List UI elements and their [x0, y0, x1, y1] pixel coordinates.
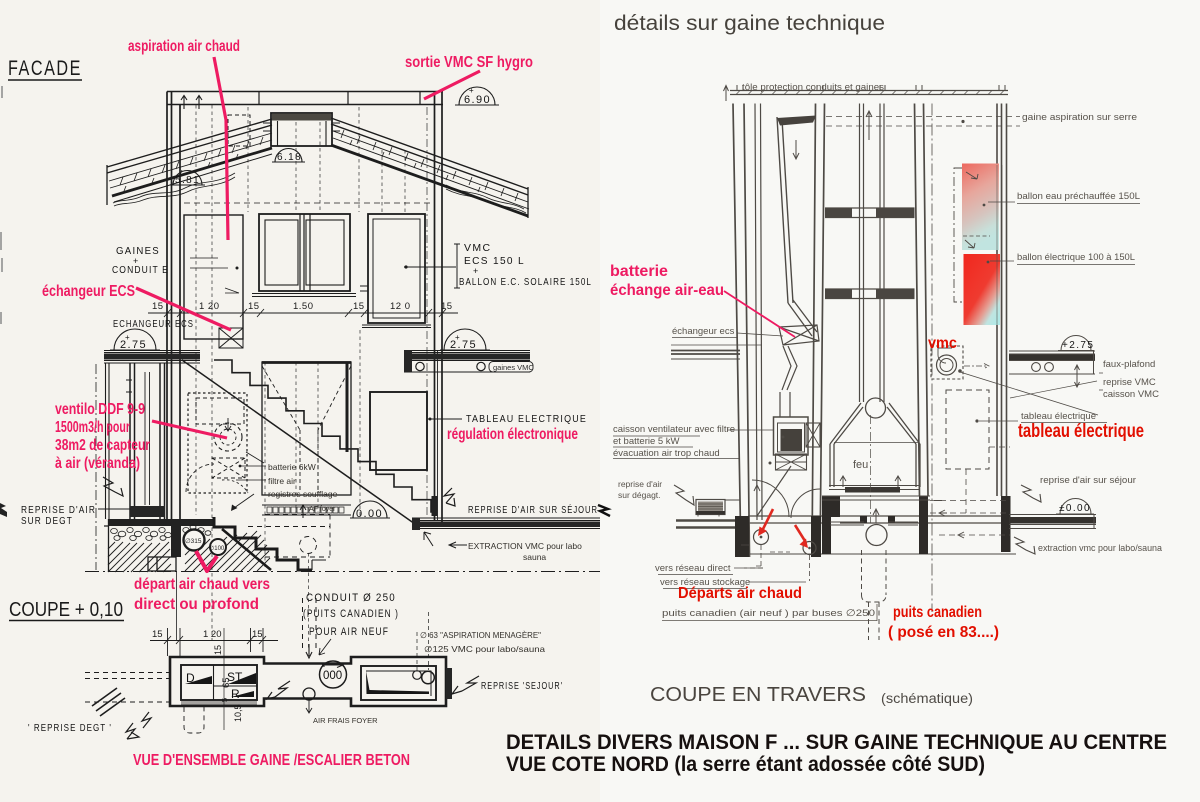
- svg-text:1 20: 1 20: [199, 301, 220, 312]
- svg-text:puits canadien: puits canadien: [893, 604, 982, 621]
- svg-text:FACADE: FACADE: [8, 57, 82, 80]
- svg-text:±0.00: ±0.00: [1059, 503, 1091, 514]
- svg-text:échangeur ECS: échangeur ECS: [42, 283, 135, 300]
- svg-text:AIR FRAIS FOYER: AIR FRAIS FOYER: [313, 716, 378, 725]
- svg-text:R: R: [231, 687, 240, 701]
- svg-text:15: 15: [152, 629, 163, 640]
- svg-text:POUR AIR NEUF: POUR AIR NEUF: [309, 626, 389, 638]
- svg-text:∅100: ∅100: [209, 545, 225, 552]
- svg-text:6.18: 6.18: [277, 152, 302, 163]
- svg-text:DETAILS DIVERS MAISON F ...: DETAILS DIVERS MAISON F ... SUR GAINE TE…: [506, 730, 1167, 754]
- svg-text:COUPE EN TRAVERS: COUPE EN TRAVERS: [650, 684, 866, 706]
- svg-text:batterie 6kW: batterie 6kW: [268, 462, 316, 472]
- svg-text:reprise d'air: reprise d'air: [618, 479, 662, 489]
- svg-text:15: 15: [441, 301, 453, 312]
- svg-text:gaine aspiration sur serre: gaine aspiration sur serre: [1022, 112, 1137, 123]
- svg-text:sauna: sauna: [523, 552, 546, 562]
- svg-text:1 20: 1 20: [203, 629, 222, 640]
- svg-text:REPRISE 'SEJOUR': REPRISE 'SEJOUR': [481, 680, 563, 692]
- svg-text:AF foyer: AF foyer: [309, 506, 336, 513]
- svg-text:15: 15: [248, 301, 260, 312]
- svg-text:SUR DEGT: SUR DEGT: [21, 515, 73, 527]
- svg-text:départ air chaud vers: départ air chaud vers: [134, 576, 270, 593]
- svg-text:ballon électrique 100 à 150: ballon électrique 100 à 150L: [1017, 252, 1135, 263]
- svg-text:gaines VMC: gaines VMC: [493, 363, 534, 372]
- svg-text:tableau électrique: tableau électrique: [1018, 421, 1144, 442]
- svg-text:à air (véranda): à air (véranda): [55, 455, 140, 472]
- svg-text:BALLON E.C. SOLAIRE 150L: BALLON E.C. SOLAIRE 150L: [459, 276, 592, 288]
- svg-text:15: 15: [353, 301, 365, 312]
- svg-text:détails sur gaine technique: détails sur gaine technique: [614, 12, 885, 35]
- svg-text:puits canadien (air neuf ): puits canadien (air neuf ) par buses ∅25…: [662, 608, 875, 619]
- svg-text:ST: ST: [227, 670, 243, 684]
- svg-text:régulation électronique: régulation électronique: [447, 426, 578, 443]
- svg-text:vmc: vmc: [928, 335, 957, 352]
- svg-text:VUE D'ENSEMBLE GAINE /ESCALIER: VUE D'ENSEMBLE GAINE /ESCALIER BETON: [133, 752, 410, 769]
- svg-text:0.00: 0.00: [356, 508, 383, 520]
- svg-text:sortie VMC SF hygro: sortie VMC SF hygro: [405, 54, 533, 71]
- svg-text:+2.75: +2.75: [1062, 340, 1094, 351]
- svg-text:(schématique): (schématique): [881, 691, 973, 706]
- svg-text:reprise d'air sur séjour: reprise d'air sur séjour: [1040, 475, 1136, 486]
- svg-text:15: 15: [213, 645, 223, 655]
- svg-text:ventilo DDF 9-9: ventilo DDF 9-9: [55, 401, 145, 418]
- svg-text:direct ou profond: direct ou profond: [134, 596, 259, 613]
- svg-text:ECHANGEUR ECS: ECHANGEUR ECS: [113, 318, 194, 330]
- svg-text:5.81: 5.81: [175, 175, 200, 186]
- svg-text:Départs air chaud: Départs air chaud: [678, 585, 802, 602]
- svg-text:ballon eau préchauffée 150: ballon eau préchauffée 150L: [1017, 191, 1140, 202]
- svg-text:+: +: [473, 266, 480, 276]
- svg-text:6.90: 6.90: [464, 94, 491, 106]
- svg-text:∅125 VMC pour labo/sauna: ∅125 VMC pour labo/sauna: [424, 644, 545, 654]
- svg-text:1.50: 1.50: [293, 301, 314, 312]
- svg-text:filtre air: filtre air: [268, 476, 296, 486]
- svg-text:sur dégagt.: sur dégagt.: [618, 490, 661, 500]
- svg-text:caisson VMC: caisson VMC: [1103, 389, 1159, 400]
- svg-text:REPRISE D'AIR SUR SÉJOUR: REPRISE D'AIR SUR SÉJOUR: [468, 503, 598, 516]
- svg-text:CONDUIT E: CONDUIT E: [112, 264, 169, 276]
- svg-text:10,5: 10,5: [233, 704, 243, 722]
- svg-text:vers réseau direct: vers réseau direct: [655, 563, 731, 574]
- svg-text:aspiration air chaud: aspiration air chaud: [128, 38, 240, 55]
- svg-text:faux-plafond: faux-plafond: [1103, 359, 1155, 370]
- svg-text:feu: feu: [853, 459, 868, 471]
- svg-text:TABLEAU ELECTRIQUE: TABLEAU ELECTRIQUE: [466, 413, 587, 425]
- svg-text:reprise VMC: reprise VMC: [1103, 377, 1156, 388]
- svg-text:( posé en 83....): ( posé en 83....): [888, 624, 999, 641]
- svg-text:38m2 de capteur: 38m2 de capteur: [55, 437, 150, 454]
- svg-text:échange air-eau: échange air-eau: [610, 282, 724, 299]
- svg-text:COUPE + 0,10: COUPE + 0,10: [9, 599, 123, 621]
- svg-text:CONDUIT Ø 250: CONDUIT Ø 250: [306, 592, 396, 604]
- svg-text:EXTRACTION VMC pour labo: EXTRACTION VMC pour labo: [468, 541, 582, 551]
- svg-text:1500m3/h pour: 1500m3/h pour: [55, 419, 130, 436]
- svg-text:et batterie 5 kW: et batterie 5 kW: [613, 436, 680, 447]
- svg-text:5: 5: [220, 698, 229, 702]
- svg-text:+: +: [455, 333, 461, 342]
- svg-text:+: +: [469, 86, 475, 95]
- svg-text:12 0: 12 0: [390, 301, 411, 312]
- svg-text:' REPRISE DEGT ': ' REPRISE DEGT ': [28, 722, 112, 734]
- svg-text:+: +: [125, 333, 131, 342]
- svg-text:échangeur ecs: échangeur ecs: [672, 326, 735, 337]
- svg-text:(PUITS CANADIEN ): (PUITS CANADIEN ): [303, 608, 399, 620]
- svg-text:caisson ventilateur avec fi: caisson ventilateur avec filtre: [613, 424, 735, 435]
- svg-text:VUE COTE NORD (la serre étan: VUE COTE NORD (la serre étant adossée cô…: [506, 752, 985, 776]
- svg-text:registres soufflage: registres soufflage: [268, 489, 338, 499]
- svg-text:batterie: batterie: [610, 263, 668, 280]
- svg-text:VMC: VMC: [464, 242, 492, 254]
- svg-text:D: D: [186, 671, 195, 685]
- svg-text:15: 15: [152, 301, 164, 312]
- svg-text:000: 000: [323, 670, 342, 682]
- svg-text:∅315: ∅315: [185, 538, 202, 545]
- svg-text:extraction vmc pour labo/sa: extraction vmc pour labo/sauna: [1038, 543, 1163, 554]
- svg-text:15: 15: [252, 629, 263, 640]
- svg-text:tôle protection conduits et: tôle protection conduits et gaines: [742, 82, 885, 92]
- svg-text:évacuation air trop chaud: évacuation air trop chaud: [613, 448, 720, 459]
- svg-text:∅ 63 "ASPIRATION MENAGÈRE": ∅ 63 "ASPIRATION MENAGÈRE": [420, 630, 541, 640]
